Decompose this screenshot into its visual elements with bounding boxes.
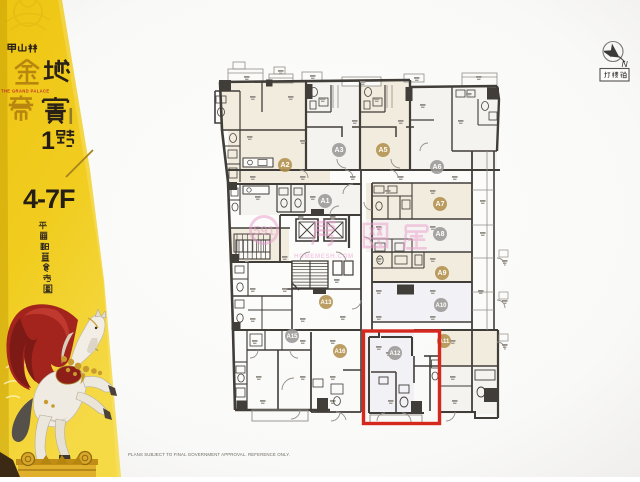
svg-text:A2: A2	[281, 162, 290, 169]
svg-text:A8: A8	[436, 231, 445, 238]
svg-text:A9: A9	[438, 270, 447, 277]
svg-text:A12: A12	[389, 351, 401, 357]
svg-text:A5: A5	[379, 147, 388, 154]
svg-text:A13: A13	[320, 300, 332, 306]
svg-text:A6: A6	[433, 164, 442, 171]
svg-text:PLANS SUBJECT TO FINAL GOVERNM: PLANS SUBJECT TO FINAL GOVERNMENT APPROV…	[128, 452, 290, 457]
svg-text:HOMEMESH.COM: HOMEMESH.COM	[294, 253, 354, 260]
svg-text:A7: A7	[436, 201, 445, 208]
svg-text:1: 1	[41, 127, 55, 155]
svg-text:A10: A10	[435, 303, 447, 309]
svg-text:N: N	[622, 59, 629, 69]
svg-text:A1: A1	[321, 198, 330, 205]
svg-text:591: 591	[253, 223, 275, 238]
svg-text:4-7F: 4-7F	[23, 184, 75, 214]
svg-text:A16: A16	[334, 349, 346, 355]
svg-text:THE GRAND PALACE: THE GRAND PALACE	[1, 89, 50, 94]
svg-text:A3: A3	[335, 147, 344, 154]
svg-text:A15: A15	[286, 334, 298, 340]
